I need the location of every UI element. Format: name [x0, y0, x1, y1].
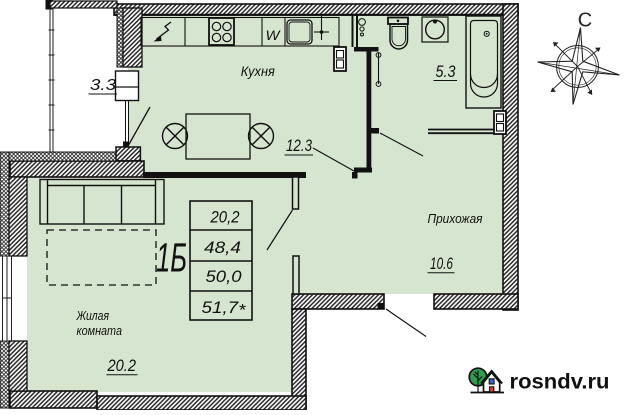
- svg-text:5.3: 5.3: [436, 63, 457, 81]
- svg-text:51,7*: 51,7*: [202, 298, 248, 320]
- svg-text:10.6: 10.6: [430, 255, 454, 273]
- svg-text:Кухня: Кухня: [241, 64, 275, 79]
- svg-text:W: W: [266, 27, 282, 43]
- svg-text:20.2: 20.2: [107, 357, 136, 375]
- svg-text:48,4: 48,4: [204, 238, 241, 257]
- svg-text:12.3: 12.3: [286, 137, 313, 155]
- svg-text:комната: комната: [77, 324, 123, 338]
- svg-text:1Б: 1Б: [156, 235, 187, 281]
- svg-text:3.3: 3.3: [90, 77, 116, 94]
- svg-text:С: С: [578, 10, 592, 32]
- svg-text:Прихожая: Прихожая: [428, 211, 483, 226]
- svg-text:Жилая: Жилая: [76, 309, 110, 323]
- svg-text:rosndv.ru: rosndv.ru: [510, 371, 610, 394]
- svg-text:20,2: 20,2: [210, 208, 240, 227]
- svg-text:50,0: 50,0: [206, 267, 243, 286]
